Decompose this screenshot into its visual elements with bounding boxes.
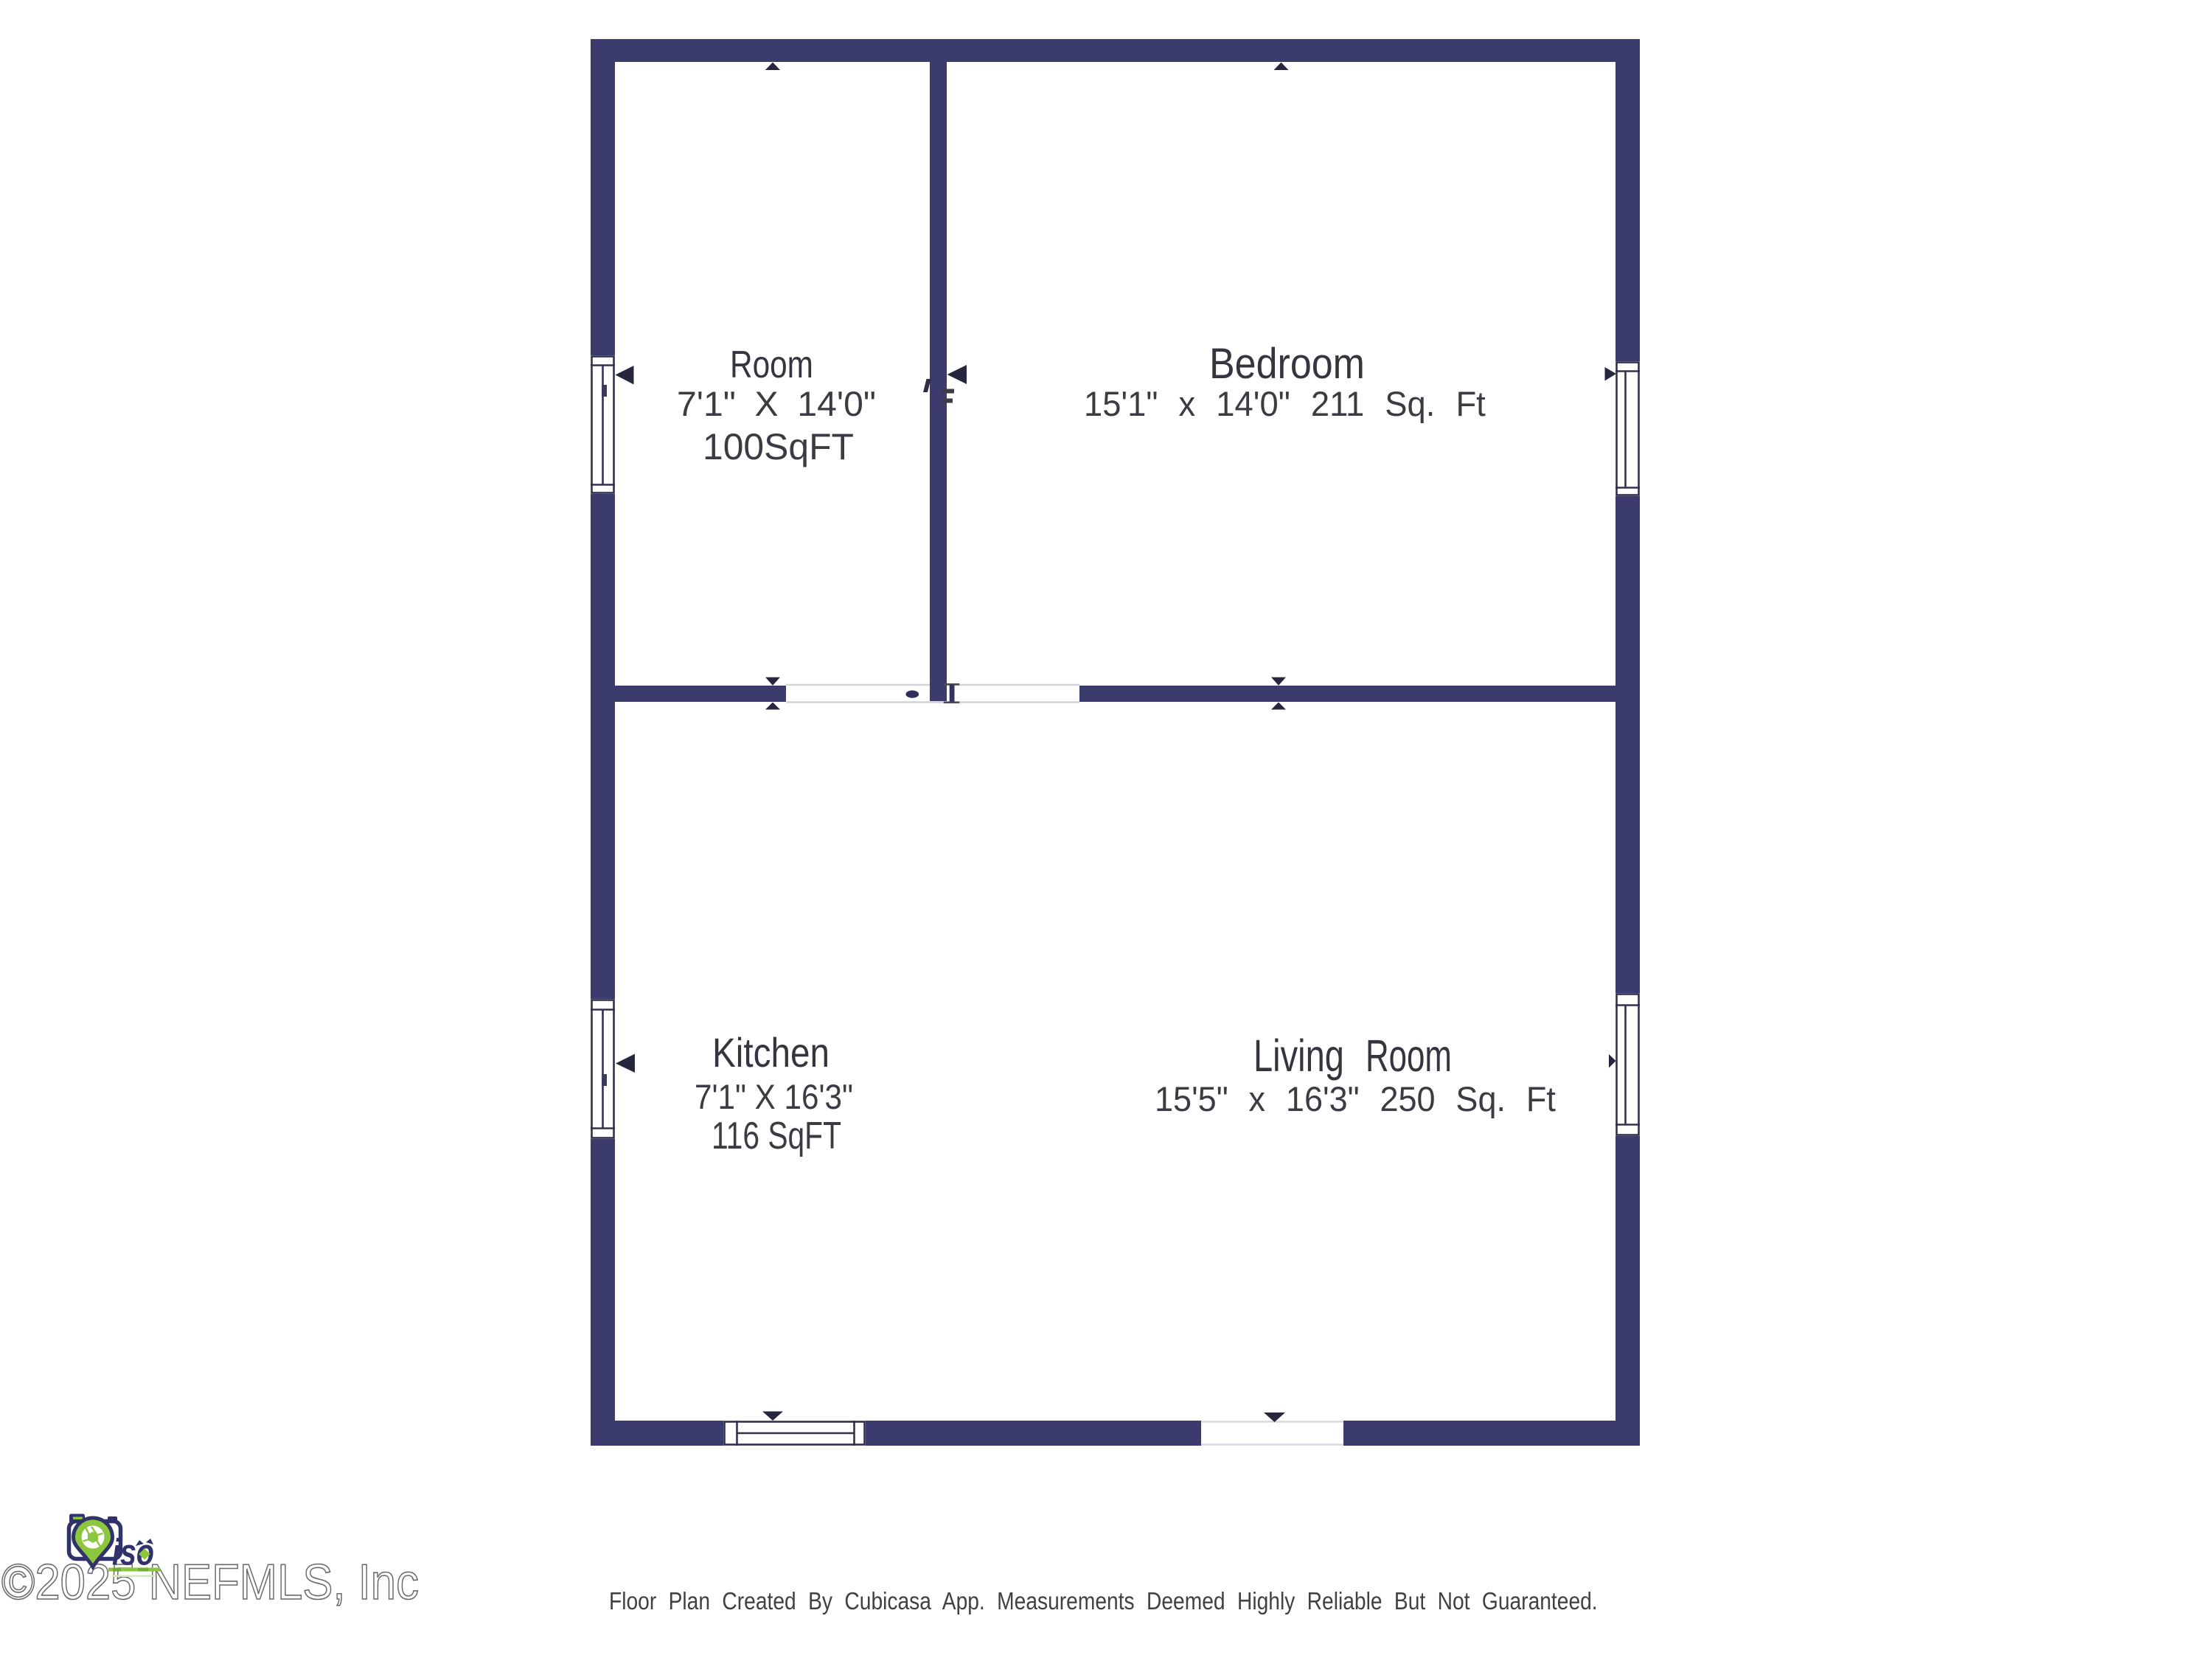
svg-text:Floor Plan Created By Cubicasa: Floor Plan Created By Cubicasa App. Meas… [609, 1587, 1598, 1615]
svg-text:116 SqFT: 116 SqFT [712, 1114, 841, 1157]
svg-text:15'5" x 16'3" 250 Sq. Ft: 15'5" x 16'3" 250 Sq. Ft [1155, 1079, 1556, 1118]
svg-text:Room: Room [1366, 1031, 1452, 1081]
svg-text:Kitchen: Kitchen [712, 1030, 829, 1076]
svg-text:Room: Room [730, 344, 813, 386]
svg-text:7'1" X 14'0": 7'1" X 14'0" [677, 386, 876, 424]
svg-text:100SqFT: 100SqFT [703, 426, 854, 467]
svg-text:15'1" x 14'0" 211 Sq. Ft: 15'1" x 14'0" 211 Sq. Ft [1084, 384, 1486, 423]
svg-text:Living: Living [1253, 1031, 1344, 1081]
svg-text:7'1" X 16'3": 7'1" X 16'3" [695, 1079, 853, 1117]
svg-text:©2025 NEFMLS, Inc: ©2025 NEFMLS, Inc [1, 1553, 419, 1609]
svg-text:Bedroom: Bedroom [1209, 339, 1365, 387]
